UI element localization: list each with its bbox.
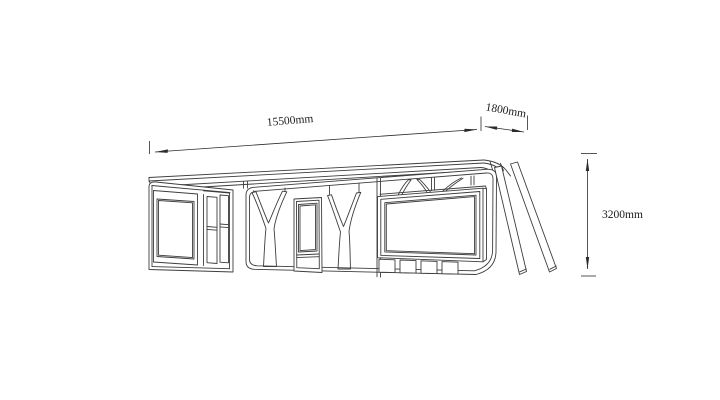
display-screen [378,186,487,262]
dimension-height: 3200mm [581,154,643,277]
dimension-length: 15500mm [150,113,478,154]
entrance-door [294,198,322,273]
arrowhead-left-icon [485,127,497,130]
dimension-depth: 1800mm [481,102,528,132]
dimension-height-label: 3200mm [602,209,643,221]
arrowhead-right-icon [464,129,477,132]
arrowhead-right-icon [512,129,524,132]
arrowhead-left-icon [155,149,168,153]
support-legs [495,162,557,275]
canvas: 15500mm 1800mm 3200mm [0,0,720,400]
dimension-length-label: 15500mm [266,113,314,129]
arrowhead-up-icon [586,159,589,171]
arrowhead-down-icon [586,257,589,269]
shelter-technical-drawing: 15500mm 1800mm 3200mm [0,0,720,400]
dimension-depth-label: 1800mm [485,102,527,121]
left-end-unit [149,182,233,272]
